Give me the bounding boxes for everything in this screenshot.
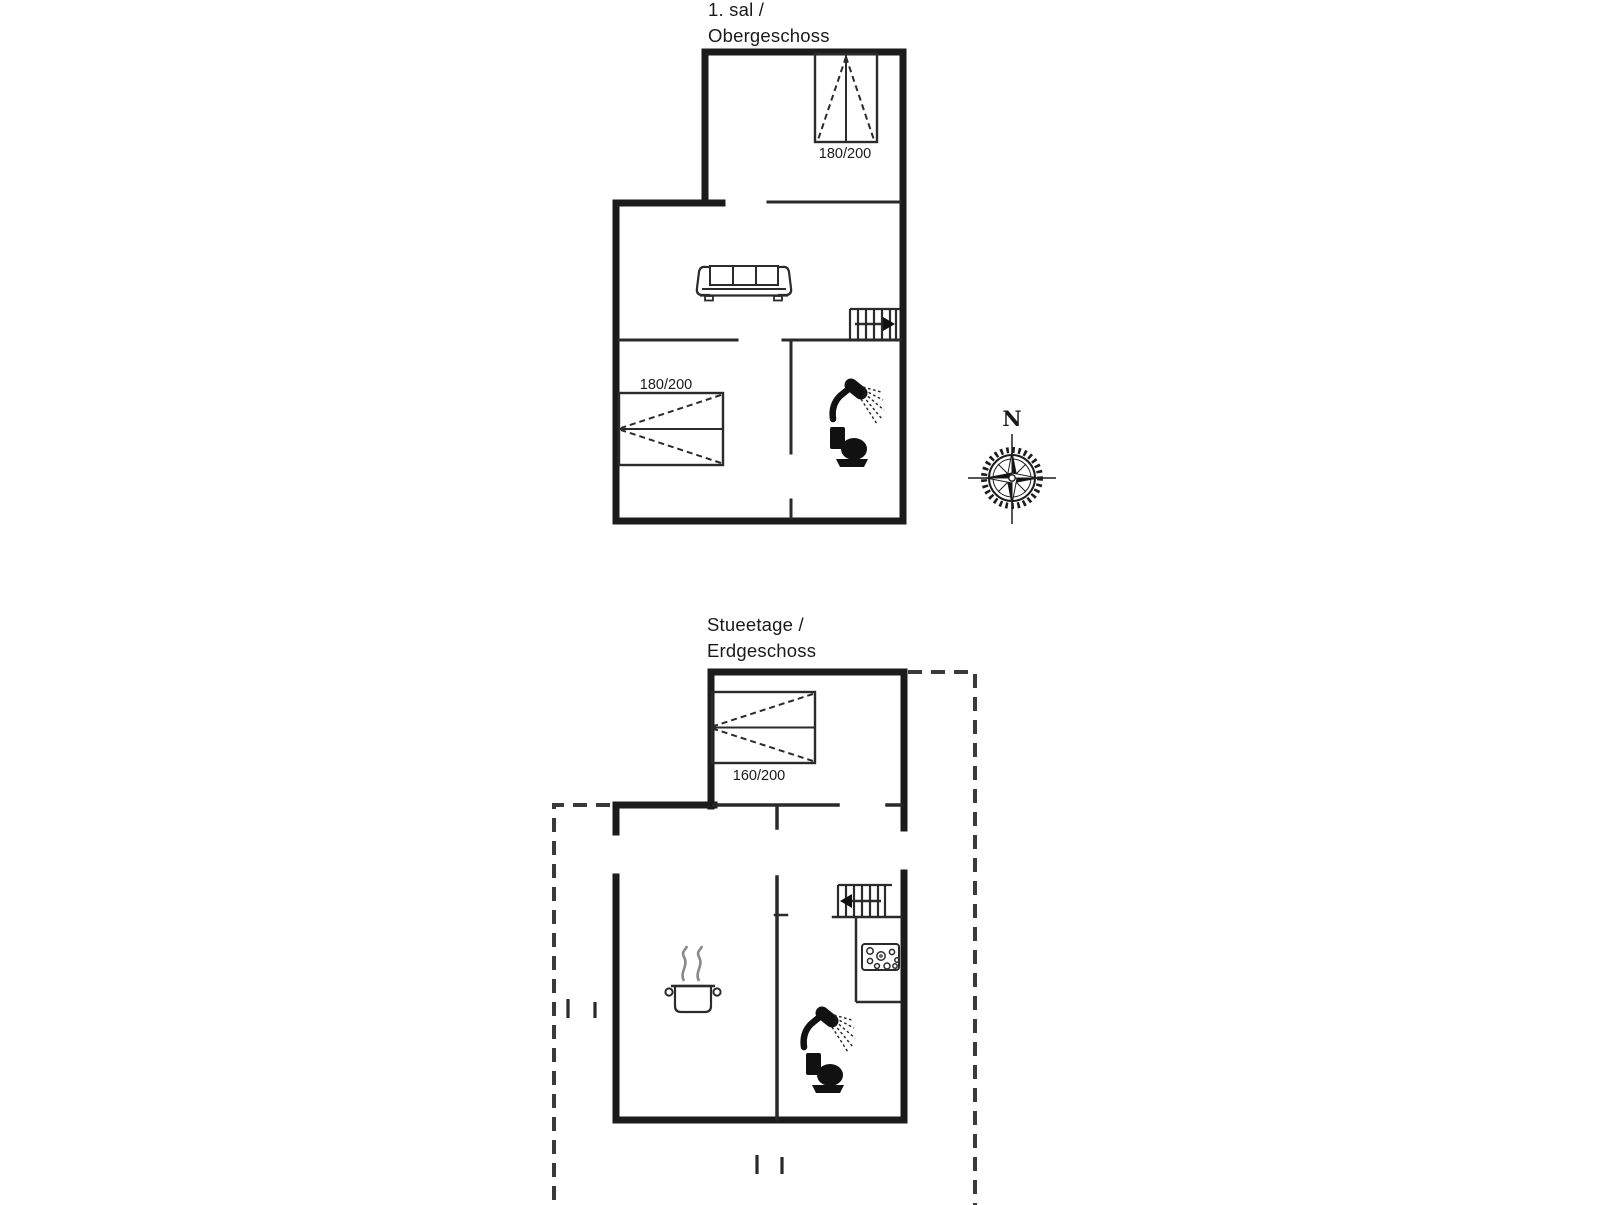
ground-floor-title-line1: Stueetage / bbox=[707, 614, 804, 635]
terrace-tick-marks bbox=[568, 999, 782, 1174]
double-bed bbox=[619, 393, 723, 465]
upper-floor-title-line2: Obergeschoss bbox=[708, 25, 830, 46]
ground-floor-title-line2: Erdgeschoss bbox=[707, 640, 816, 661]
staircase-up bbox=[850, 309, 900, 339]
shower-icon bbox=[833, 385, 884, 424]
upper-floor-plan: 1. sal / Obergeschoss 180/200 180/200 bbox=[616, 0, 903, 521]
toilet-icon bbox=[830, 427, 868, 467]
staircase-down bbox=[838, 885, 892, 916]
toilet-icon bbox=[806, 1053, 844, 1093]
bed-size-label: 160/200 bbox=[733, 768, 785, 784]
shower-icon bbox=[804, 1013, 855, 1052]
sofa bbox=[697, 266, 791, 301]
ground-floor-plan: Stueetage / Erdgeschoss bbox=[554, 614, 975, 1205]
double-bed bbox=[815, 54, 877, 142]
bed-size-label: 180/200 bbox=[819, 146, 871, 162]
compass-north-label: N bbox=[1002, 406, 1021, 431]
floorplan-canvas: 1. sal / Obergeschoss 180/200 180/200 bbox=[0, 0, 1606, 1205]
compass-rose: N bbox=[968, 406, 1056, 524]
bed-size-label: 180/200 bbox=[640, 377, 692, 393]
upper-interior-walls bbox=[619, 202, 900, 518]
hob-icon bbox=[862, 944, 899, 970]
kitchen-counter bbox=[856, 918, 901, 1002]
double-bed bbox=[712, 692, 815, 763]
ground-exterior-walls bbox=[616, 672, 904, 1120]
upper-floor-title-line1: 1. sal / bbox=[708, 0, 765, 20]
cooking-pot-icon bbox=[665, 946, 720, 1012]
